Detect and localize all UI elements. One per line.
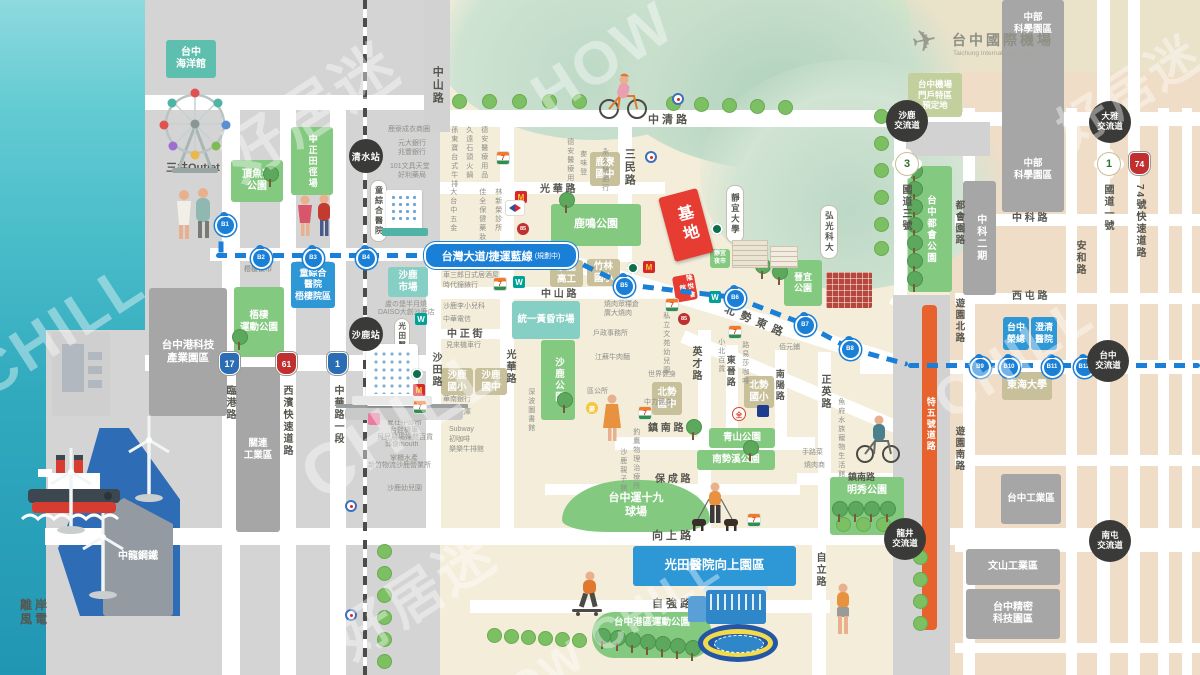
- road-surface: [1066, 108, 1077, 675]
- poi-label: 邱食mouth: [385, 441, 418, 449]
- tree-icon: [521, 630, 536, 645]
- highway-shield-1: 1: [327, 352, 348, 375]
- brand-icon-c85: 85: [517, 223, 529, 235]
- brand-icon-sevel: 7: [414, 401, 426, 413]
- road-label: 鎮南路: [848, 472, 875, 483]
- tree-icon: [879, 501, 895, 522]
- tree-icon: [377, 588, 392, 603]
- stadium-illustration: [686, 580, 786, 664]
- poi-label: 林新榮診所: [494, 188, 502, 233]
- tree-icon: [685, 419, 701, 440]
- railway-station: 沙鹿站: [349, 317, 383, 351]
- poi-label: 德安醫療用品: [480, 126, 488, 180]
- railway-station: 清水站: [349, 139, 383, 173]
- tree-icon: [377, 566, 392, 581]
- brick-campus-illustration: [826, 272, 872, 308]
- skateboarder-illustration: [566, 570, 610, 616]
- poi-label: 中力健身: [644, 399, 672, 407]
- brand-icon-sevel: 7: [497, 152, 509, 164]
- mrt-station-B2: B2: [251, 248, 272, 269]
- wind-turbine-icon: [126, 408, 172, 504]
- road-label: 西 屯 路: [1012, 291, 1048, 303]
- tree-icon: [913, 572, 928, 587]
- tree-icon: [377, 632, 392, 647]
- brand-icon-navy: [757, 405, 769, 417]
- brand-icon-mcd: M: [413, 384, 425, 396]
- map-canvas: ✈ 台中國際機場 Taichung International Airport …: [0, 0, 1200, 675]
- tree-icon: [778, 100, 793, 115]
- tree-icon: [262, 166, 278, 187]
- road-surface: [1182, 108, 1192, 675]
- road-label: 英才路: [689, 346, 701, 382]
- brand-icon-watsons: W: [513, 276, 525, 288]
- tree-icon: [624, 632, 640, 653]
- road-label: 東晉路: [725, 355, 736, 388]
- poi-label: 廣大燒肉: [604, 310, 632, 318]
- tree-icon: [654, 636, 670, 657]
- road-label: 國道三號: [899, 184, 911, 232]
- road-surface: [1158, 108, 1169, 675]
- mrt-station-B7: B7: [795, 315, 816, 336]
- road-label: 中 山 路: [541, 289, 577, 301]
- brand-icon-sevel: 7: [748, 514, 760, 526]
- tree-icon: [377, 654, 392, 669]
- road-label: 光華路: [503, 349, 515, 385]
- dog-walker-illustration: [690, 481, 740, 533]
- block-park: 南勢溪公園: [697, 450, 775, 470]
- walking-woman-illustration: [600, 394, 624, 442]
- standing-person-illustration: [832, 582, 854, 638]
- road-label: 鎮 南 路: [648, 423, 684, 435]
- tree-icon: [594, 628, 610, 649]
- tree-icon: [572, 633, 587, 648]
- road-label: 向 上 路: [652, 530, 691, 543]
- poi-label: 夏在中診所: [387, 419, 422, 427]
- brand-icon-sevel: 7: [494, 278, 506, 290]
- road-label: 正英路: [818, 374, 830, 410]
- tree-icon: [555, 632, 570, 647]
- poi-label: 沙鹿幼兒園: [387, 485, 422, 493]
- tree-icon: [874, 241, 889, 256]
- tree-icon: [874, 217, 889, 232]
- road-label: 南陽路: [774, 369, 785, 402]
- tree-icon: [452, 94, 467, 109]
- poi-label: 初咖啡: [449, 436, 470, 444]
- brand-icon-mcd: M: [643, 261, 655, 273]
- brand-icon-pink: [368, 413, 380, 425]
- university-buildings-illustration: [730, 236, 800, 268]
- tree-icon: [377, 544, 392, 559]
- highway-shield-1: 1: [1097, 152, 1121, 176]
- block-market: 統一黃昏市場: [512, 301, 580, 339]
- poi-label: 兆豐銀行: [398, 149, 426, 157]
- wind-turbine-icon: [80, 505, 126, 601]
- road-surface: [955, 455, 1200, 466]
- interchange-badge: 龍井 交流道: [884, 518, 926, 560]
- poi-label: 孫東寶台式牛排: [450, 126, 458, 189]
- poi-label: 燒肉商: [804, 462, 825, 470]
- tree-icon: [913, 594, 928, 609]
- tree-icon: [556, 392, 572, 413]
- pedestrian-pair-illustration: [294, 194, 336, 238]
- mrt-station-B11: B11: [1042, 357, 1063, 378]
- brand-icon-carrefour: [506, 201, 524, 215]
- road-label: 三民路: [622, 148, 635, 187]
- tree-icon: [231, 329, 247, 350]
- interchange-badge: 台中 交流道: [1087, 340, 1129, 382]
- brand-icon-roundel: [345, 609, 357, 621]
- road-label: 安和路: [1073, 240, 1085, 276]
- poi-label: 路易莎咖啡: [741, 341, 749, 386]
- poi-label: 戶政事務所: [593, 330, 628, 338]
- road-label: 特五號道路: [925, 397, 936, 452]
- poi-label: 佰元鋪: [779, 344, 800, 352]
- block-ind: 中科二期: [963, 181, 996, 295]
- interchange-badge: 沙鹿 交流道: [886, 100, 928, 142]
- poi-label: 車三郎日式居酒屋: [443, 272, 499, 280]
- brand-icon-sevel: 7: [639, 407, 651, 419]
- road-label: 臨港路: [223, 385, 235, 421]
- brand-icon-yellow: 麥: [586, 402, 598, 414]
- block-ind: 台中港科技 產業園區: [149, 288, 227, 416]
- brand-icon-roundel: [645, 151, 657, 163]
- brand-icon-sbx: [411, 368, 423, 380]
- tree-icon: [831, 501, 847, 522]
- road-label: 保 成 路: [655, 474, 691, 486]
- mrt-station-B4: B4: [356, 248, 377, 269]
- tree-icon: [504, 629, 519, 644]
- road-label: 離岸 風電: [20, 598, 50, 627]
- tree-icon: [847, 501, 863, 522]
- road-label: 國道一號: [1101, 184, 1113, 232]
- road-label: 光 華 路: [540, 184, 576, 196]
- road-label: 西濱快速道路: [280, 385, 292, 457]
- brand-icon-c85: 85: [678, 313, 690, 325]
- pedestrian-couple-illustration: [174, 188, 214, 242]
- poi-label: Subway: [449, 426, 474, 434]
- poi-label: 燒肉眾糧倉: [604, 301, 639, 309]
- interchange-badge: 南屯 交流道: [1089, 520, 1131, 562]
- highway-shield-61: 61: [276, 352, 297, 375]
- block-market: 沙鹿 市場: [388, 267, 428, 297]
- brand-icon-sbx: [627, 262, 639, 274]
- brand-icon-watsons: W: [415, 313, 427, 325]
- tree-icon: [750, 99, 765, 114]
- poi-label: 佳全保健藥妝: [478, 188, 486, 242]
- tree-icon: [487, 628, 502, 643]
- tree-icon: [572, 94, 587, 109]
- highway-shield-3: 3: [895, 152, 919, 176]
- poi-label: 大台中五金: [449, 188, 457, 233]
- road-label: 中 科 路: [1012, 213, 1048, 225]
- poi-label: 好利藥局: [398, 172, 426, 180]
- poi-label: 手路菜: [802, 449, 823, 457]
- poi-label: 樂樂牛排館: [449, 446, 484, 454]
- poi-label: 久遠石頭火鍋: [465, 126, 473, 180]
- hospital-building-illustration: [382, 188, 428, 238]
- mrt-station-B3: B3: [303, 248, 324, 269]
- brand-icon-roundel: [672, 93, 684, 105]
- brand-icon-pxmart: 全: [732, 407, 746, 421]
- brand-icon-roundel: [345, 500, 357, 512]
- train-station-illustration: [334, 340, 474, 420]
- interchange-badge: 大雅 交流道: [1089, 101, 1131, 143]
- road-label: 遊園南路: [953, 426, 964, 472]
- road-surface: [955, 643, 1200, 653]
- block-park: 靜宜 夜市: [710, 249, 730, 268]
- harbor-crane-illustration: [52, 332, 110, 416]
- tree-icon: [542, 94, 557, 109]
- tree-icon: [874, 136, 889, 151]
- block-hosp: 台中 榮總: [1003, 317, 1029, 350]
- tree-icon: [639, 634, 655, 655]
- tree-icon: [906, 271, 922, 292]
- tree-icon: [742, 440, 758, 461]
- highway-shield-74: 74: [1129, 152, 1150, 175]
- poi-label: 深波圖書館: [527, 388, 535, 433]
- tree-icon: [874, 163, 889, 178]
- block-hosp: 童綜合 醫院 梧棲院區: [291, 262, 335, 308]
- poi-label: 私立文苑幼兒園: [662, 312, 670, 375]
- tree-icon: [694, 97, 709, 112]
- block-pill: 靜宜大學: [726, 185, 744, 243]
- mrt-line-label: 台灣大道/捷運藍線 (規劃中): [424, 242, 578, 269]
- mrt-station-B8: B8: [840, 339, 861, 360]
- tree-icon: [874, 190, 889, 205]
- poi-label: 小北百貨: [717, 338, 725, 374]
- poi-label: 鹿寮成衣商圈: [388, 126, 430, 134]
- road-label: 遊園北路: [953, 298, 964, 344]
- tree-icon: [913, 616, 928, 631]
- airport-name: 台中國際機場: [952, 30, 1054, 50]
- block-ind: 文山工業區: [966, 549, 1060, 585]
- mrt-line-status: (規劃中): [535, 251, 561, 261]
- block-pill: 弘光科大: [820, 205, 838, 259]
- cyclist-illustration: [596, 72, 650, 120]
- brand-icon-sevel: 7: [729, 326, 741, 338]
- block-ind: 關連 工業區: [236, 367, 280, 532]
- tree-icon: [482, 94, 497, 109]
- district-label: 中部 科學園區: [1004, 158, 1062, 182]
- block-park: 中正田徑場: [291, 127, 333, 195]
- road-label: 74號快速道路: [1133, 184, 1145, 259]
- road-label: 中 清 路: [648, 114, 687, 127]
- poi-label: 魚府水族寵物生活館: [837, 398, 845, 479]
- mrt-station-B6: B6: [725, 288, 746, 309]
- tree-icon: [377, 610, 392, 625]
- tree-icon: [512, 94, 527, 109]
- road-surface: [1128, 0, 1140, 675]
- poi-label: 中華電信: [443, 316, 471, 324]
- ferris-wheel-illustration: [152, 82, 238, 174]
- poi-label: 時代鐘錶行: [443, 282, 478, 290]
- poi-label: 釣鷹物理治療所: [632, 428, 640, 491]
- mrt-line-name: 台灣大道/捷運藍線: [442, 248, 533, 264]
- mrt-station-B1: B1: [215, 215, 236, 236]
- poi-label: 江蘇牛肉麵: [595, 354, 630, 362]
- poi-label: 世界健身: [648, 371, 676, 379]
- mrt-station-B5: B5: [614, 276, 635, 297]
- poi-label: 沙鹿親子館: [619, 448, 627, 493]
- airport-name-en: Taichung International Airport: [953, 50, 1037, 57]
- brand-icon-sevel: 7: [666, 299, 678, 311]
- poi-label: 麥味登: [579, 150, 587, 177]
- cyclist-illustration: [854, 410, 902, 464]
- poi-label: 盧の堡半月燒: [385, 301, 427, 309]
- block-teal: 台中 海洋館: [166, 40, 216, 78]
- poi-label: 101文具天堂: [390, 163, 430, 171]
- mrt-station-B9: B9: [970, 357, 991, 378]
- tree-icon: [609, 630, 625, 651]
- block-hosp: 澄清 醫院: [1031, 317, 1057, 350]
- brand-icon-sbx: [711, 223, 723, 235]
- tree-icon: [722, 98, 737, 113]
- highway-shield-17: 17: [219, 352, 240, 375]
- poi-label: 沙鹿李小兒科: [443, 303, 485, 311]
- block-ind: 台中精密 科技園區: [966, 589, 1060, 639]
- poi-label: 永久輪胎行: [601, 148, 609, 193]
- tree-icon: [669, 638, 685, 659]
- mrt-station-B10: B10: [999, 357, 1020, 378]
- road-label: 都會園路: [953, 200, 964, 246]
- road-label: 中山路: [430, 66, 443, 105]
- road-label: 自立路: [813, 552, 825, 588]
- tree-icon: [863, 501, 879, 522]
- tree-icon: [538, 631, 553, 646]
- block-ind: 台中工業區: [1001, 474, 1061, 524]
- poi-label: 新竹物流沙鹿營業所: [368, 462, 431, 470]
- poi-label: 元大銀行: [398, 140, 426, 148]
